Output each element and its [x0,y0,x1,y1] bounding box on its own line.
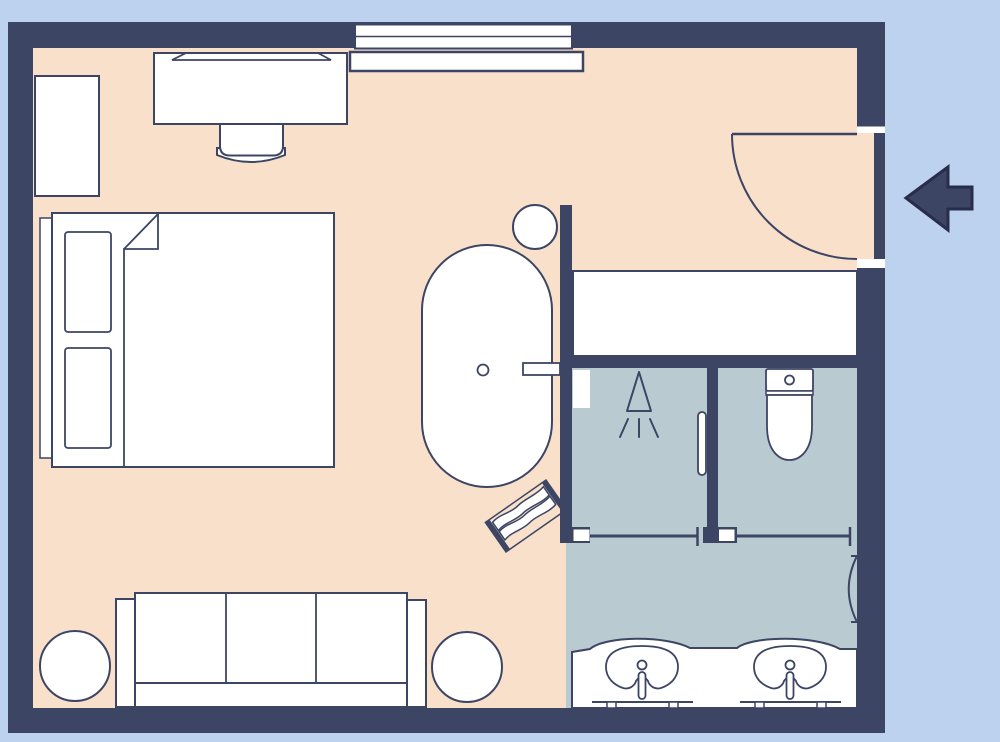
desk-chair-seat [220,124,283,156]
sofa-seat-cushions [135,593,407,683]
double-bed [40,213,334,467]
closet-box [573,271,857,356]
toilet [766,369,813,460]
door-jamb-top [857,127,885,134]
desk [154,53,347,124]
faucet-handle [639,672,646,699]
side-table-left [40,631,110,701]
headboard [40,218,52,458]
pillow-top [65,232,111,332]
jamb-shower-door [574,530,590,542]
floor-plan [0,0,1000,742]
entrance-arrow-icon [906,167,972,230]
sink-foot-right [669,702,678,708]
sofa-armrest-left [116,599,135,707]
jamb-wc-door [719,530,735,542]
dresser [35,76,99,196]
side-table-right [432,632,502,702]
sink-foot-left [607,702,616,708]
window-shelf [350,52,583,71]
sofa-armrest-right [407,600,426,707]
floor-plan-canvas [0,0,1000,742]
tub-side-stool [513,205,557,249]
toilet-flush-button [785,376,794,385]
sofa-back [135,683,407,707]
double-vanity [572,639,857,708]
wall-closet-bathroom [572,356,857,368]
entry-threshold [857,133,874,260]
tub-drain [478,365,489,376]
tub-faucet-shelf [523,363,560,375]
wall-bedroom-bathroom [560,205,572,540]
wall-shower-wc [707,368,718,540]
shower-niche [573,370,590,408]
pillow-bottom [65,348,111,448]
shower-door-handle [698,412,706,475]
window [355,25,572,49]
door-jamb-bottom [857,259,885,268]
toilet-bowl [767,395,812,460]
faucet-base [638,661,647,670]
